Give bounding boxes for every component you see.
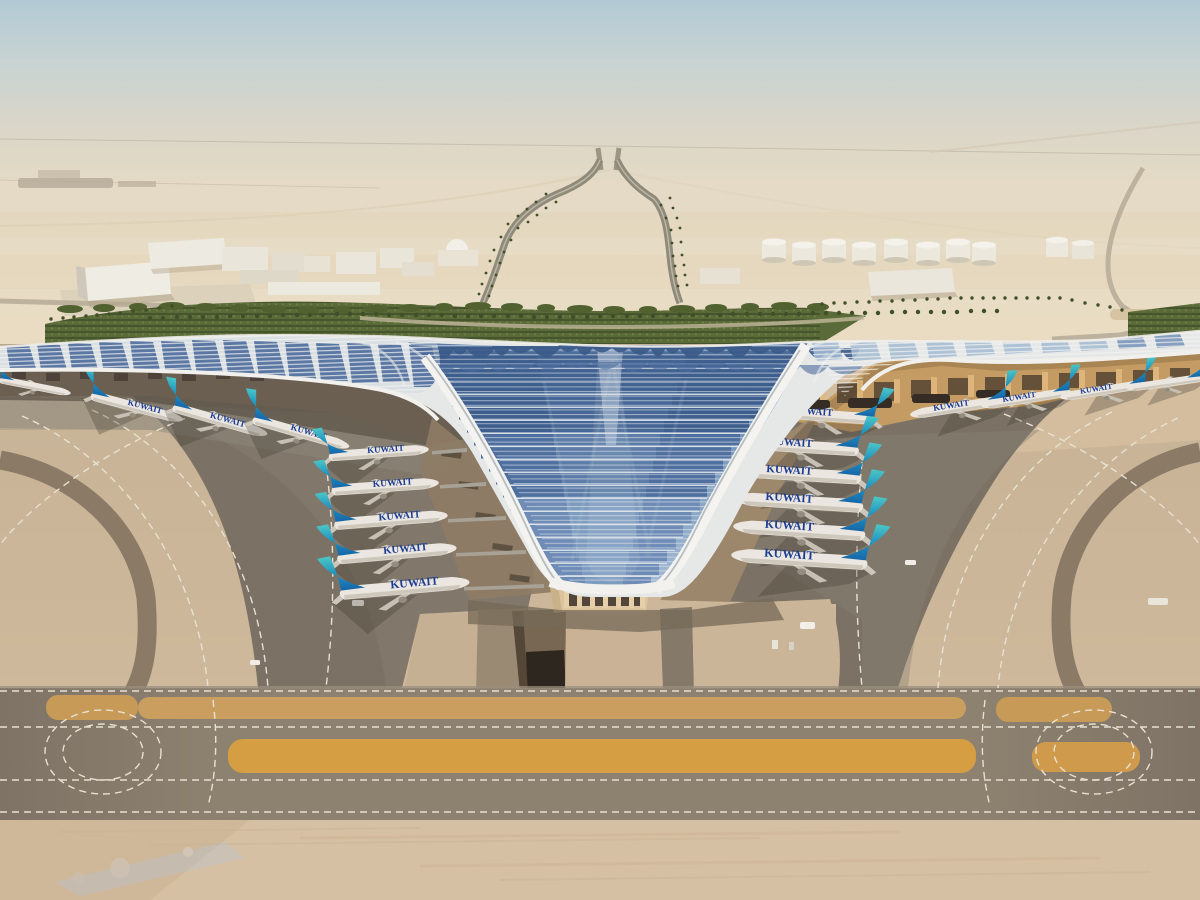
svg-text:KUWAIT: KUWAIT [764, 517, 814, 534]
